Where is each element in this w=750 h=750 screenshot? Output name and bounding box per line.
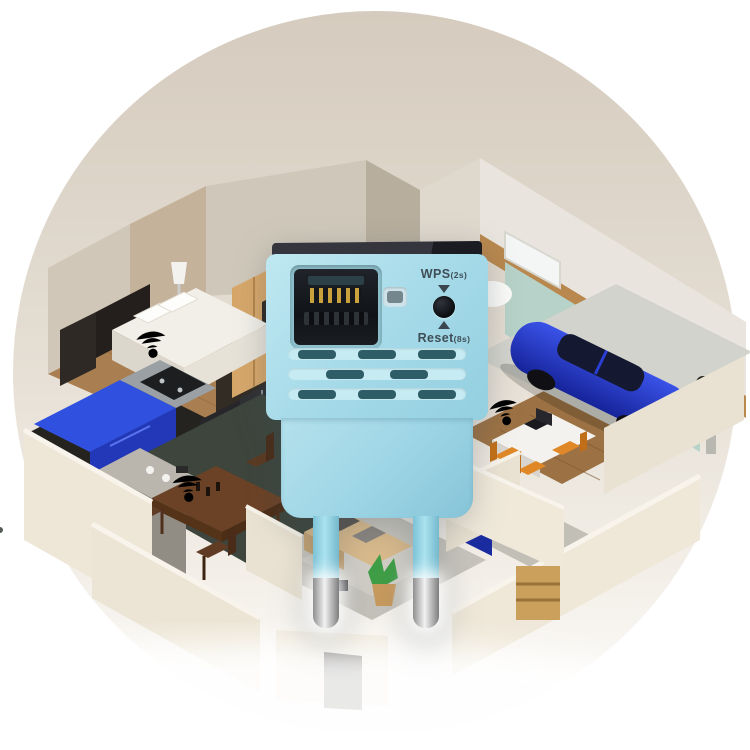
reset-label: Reset(8s) <box>404 332 484 346</box>
wps-label: WPS(2s) <box>404 268 484 282</box>
ethernet-contact-comb <box>304 312 368 325</box>
plug-pin-left <box>313 516 339 628</box>
status-led-lens <box>387 291 403 303</box>
vent-grill <box>266 348 488 408</box>
product-image: WPS(2s) Reset(8s) <box>0 0 750 750</box>
reset-hold-time: (8s) <box>454 334 471 344</box>
bottom-fade <box>0 640 720 750</box>
wps-reset-controls: WPS(2s) Reset(8s) <box>404 268 484 346</box>
reset-arrow-icon <box>438 321 450 329</box>
wps-hold-time: (2s) <box>450 270 467 280</box>
vent-row <box>288 388 466 400</box>
eu-plug-pins <box>266 518 488 632</box>
wps-arrow-icon <box>438 285 450 293</box>
ethernet-port-socket <box>294 269 378 345</box>
wps-reset-button <box>433 296 455 318</box>
vent-row <box>288 348 466 360</box>
vent-row <box>288 368 466 380</box>
device-body-upper: WPS(2s) Reset(8s) <box>266 254 488 420</box>
ethernet-gold-pins <box>310 288 362 303</box>
device-body-lower <box>281 418 473 518</box>
plug-pin-right <box>413 516 439 628</box>
ethernet-port <box>290 265 382 349</box>
wifi-repeater-device: WPS(2s) Reset(8s) <box>266 242 488 632</box>
ethernet-latch-slot <box>308 276 364 285</box>
